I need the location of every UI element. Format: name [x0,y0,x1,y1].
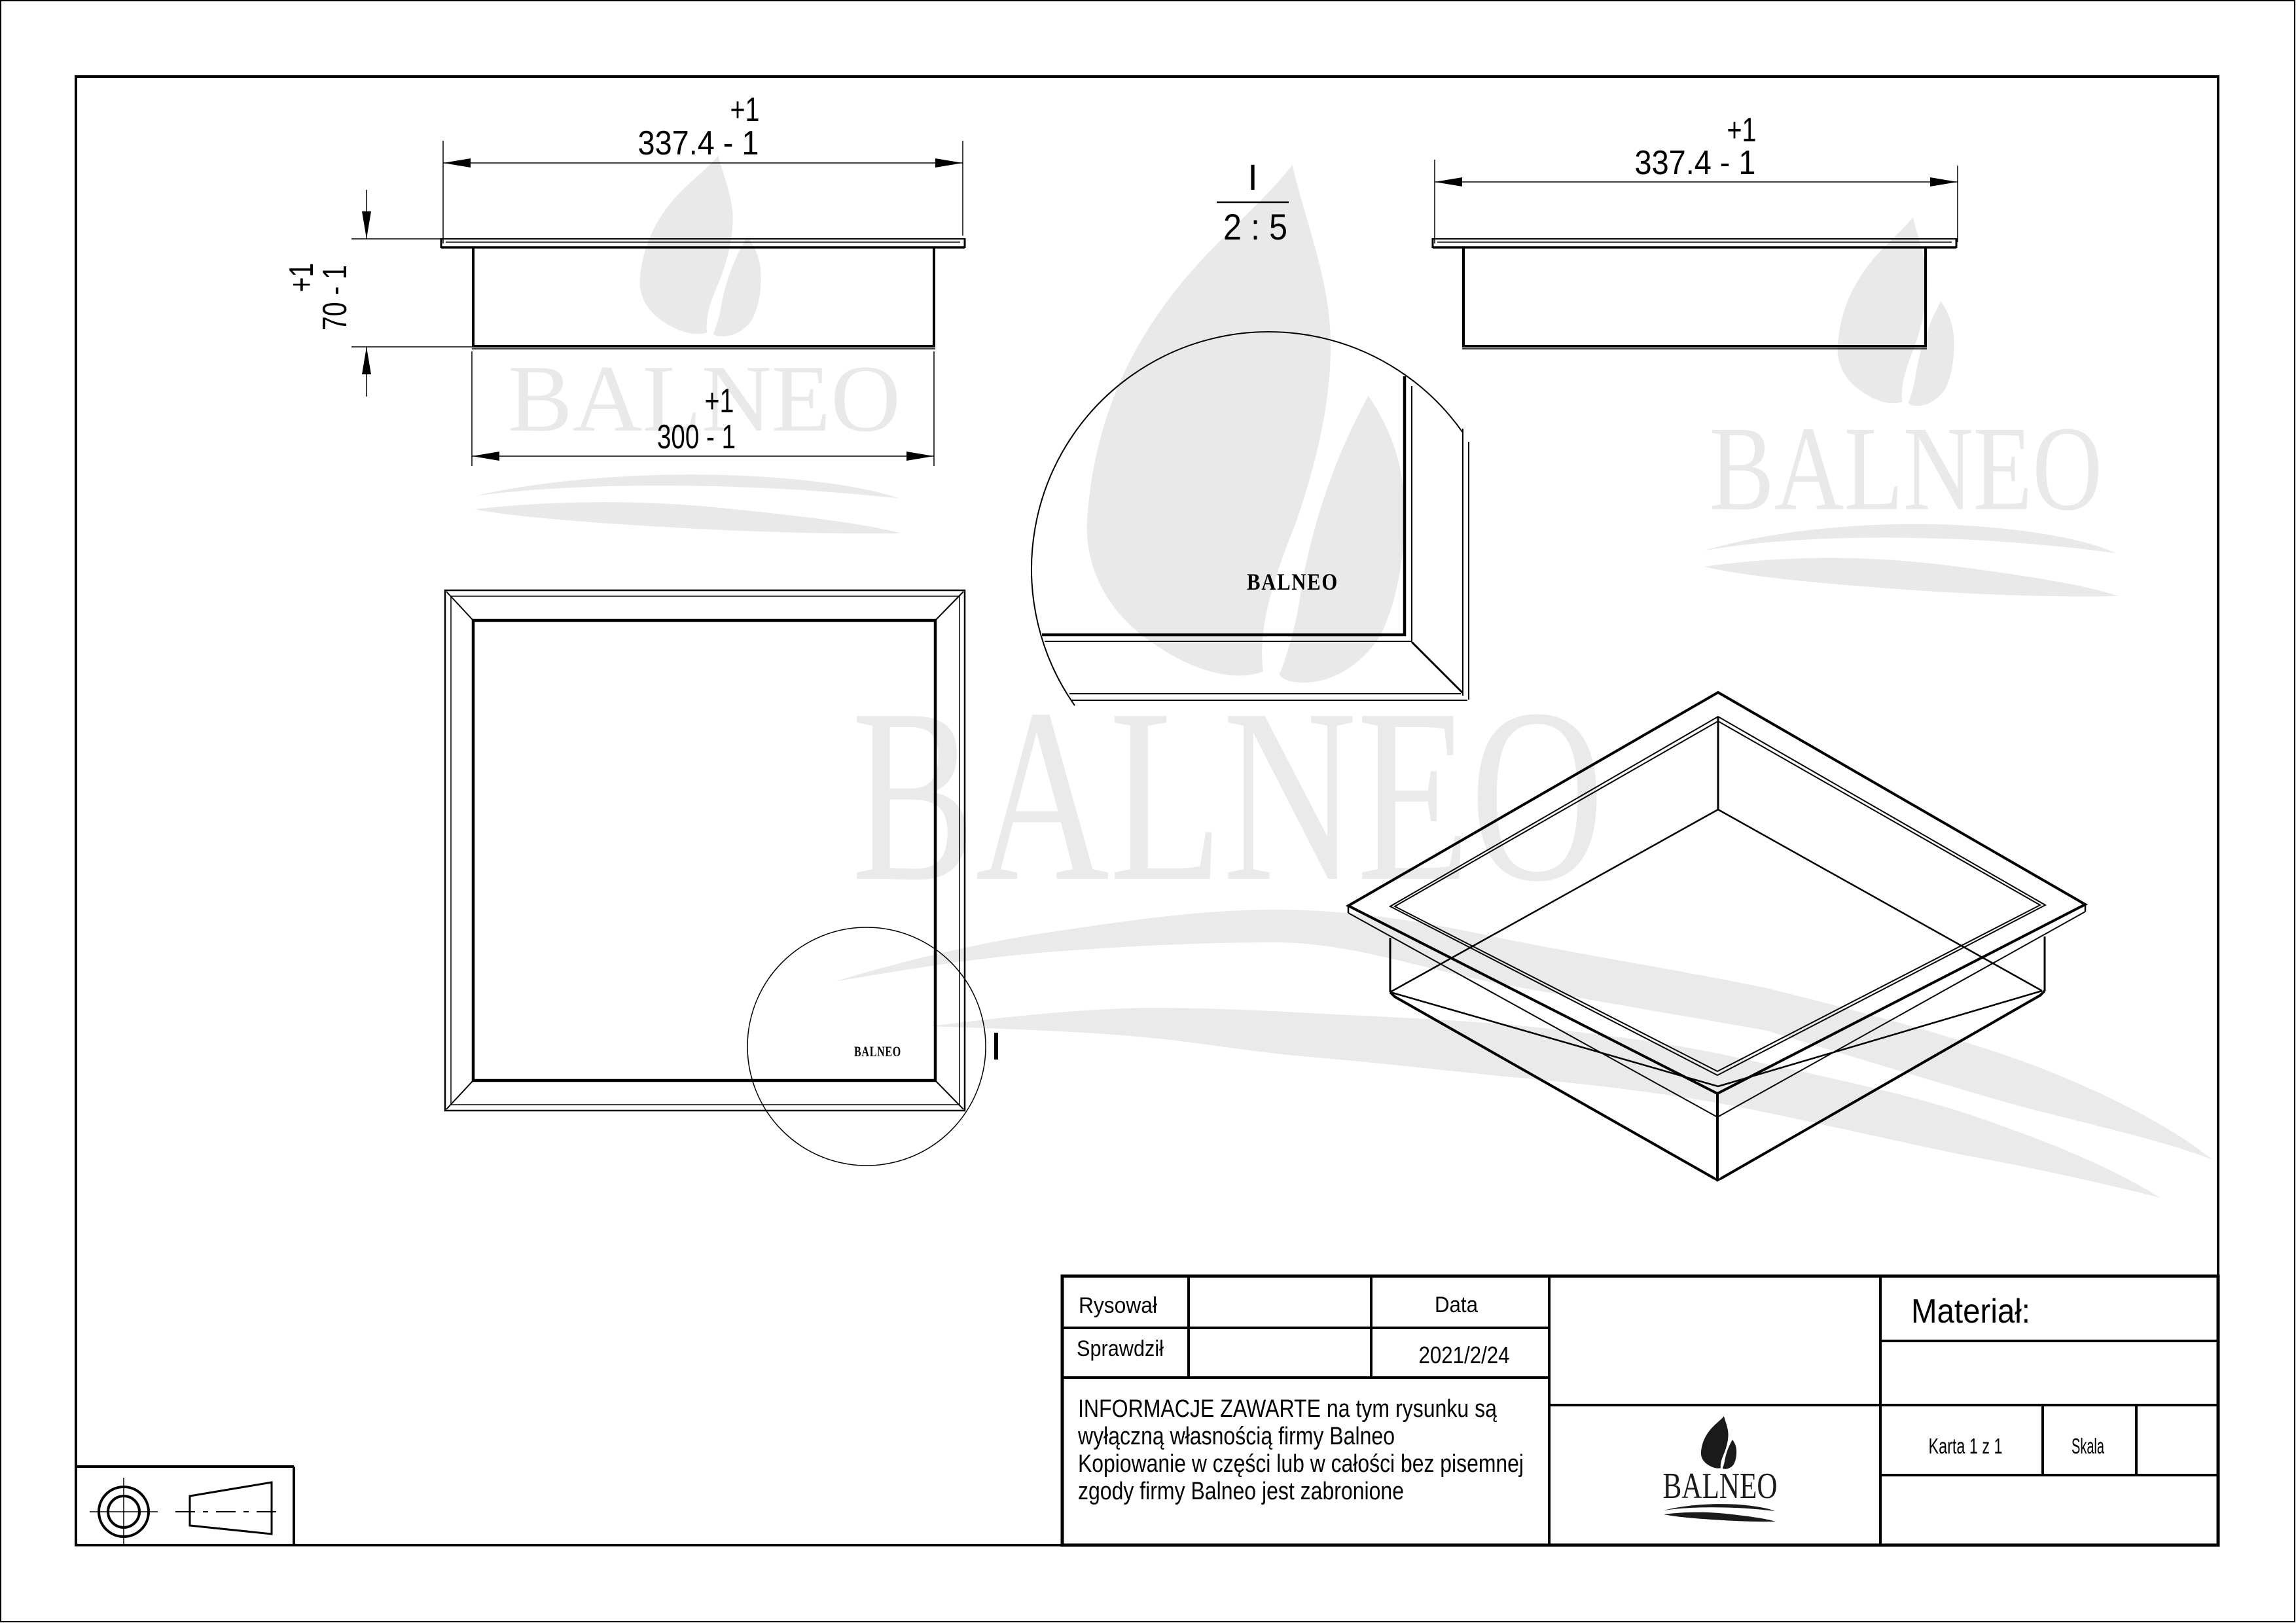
svg-text:Materiał:: Materiał: [1911,1293,2030,1330]
svg-text:300 - 1: 300 - 1 [657,418,736,456]
svg-text:2021/2/24: 2021/2/24 [1419,1342,1510,1368]
svg-text:2 : 5: 2 : 5 [1223,206,1287,247]
svg-text:BALNEO: BALNEO [1247,569,1338,595]
svg-text:INFORMACJE ZAWARTE na tym rysu: INFORMACJE ZAWARTE na tym rysunku są [1078,1395,1498,1423]
svg-text:Karta 1 z 1: Karta 1 z 1 [1929,1434,2003,1458]
svg-text:I: I [1247,156,1258,198]
svg-text:BALNEO: BALNEO [1710,402,2102,536]
svg-text:Sprawdził: Sprawdził [1077,1336,1164,1361]
svg-text:wyłączną własnością firmy Baln: wyłączną własnością firmy Balneo [1077,1423,1395,1450]
svg-text:Skala: Skala [2072,1434,2104,1458]
svg-text:+1: +1 [283,263,321,293]
svg-text:BALNEO: BALNEO [1663,1466,1778,1507]
svg-text:Rysował: Rysował [1079,1293,1157,1318]
svg-text:+1: +1 [705,382,734,420]
svg-text:Data: Data [1435,1293,1478,1317]
svg-text:337.4 - 1: 337.4 - 1 [638,124,759,162]
svg-text:zgody firmy Balneo jest zabron: zgody firmy Balneo jest zabronione [1078,1478,1404,1505]
svg-text:BALNEO: BALNEO [854,1043,901,1060]
svg-text:337.4 - 1: 337.4 - 1 [1635,144,1756,182]
svg-text:+1: +1 [730,91,760,129]
svg-text:70 - 1: 70 - 1 [316,265,354,330]
svg-text:Kopiowanie w części lub w cało: Kopiowanie w części lub w całości bez pi… [1078,1450,1524,1478]
